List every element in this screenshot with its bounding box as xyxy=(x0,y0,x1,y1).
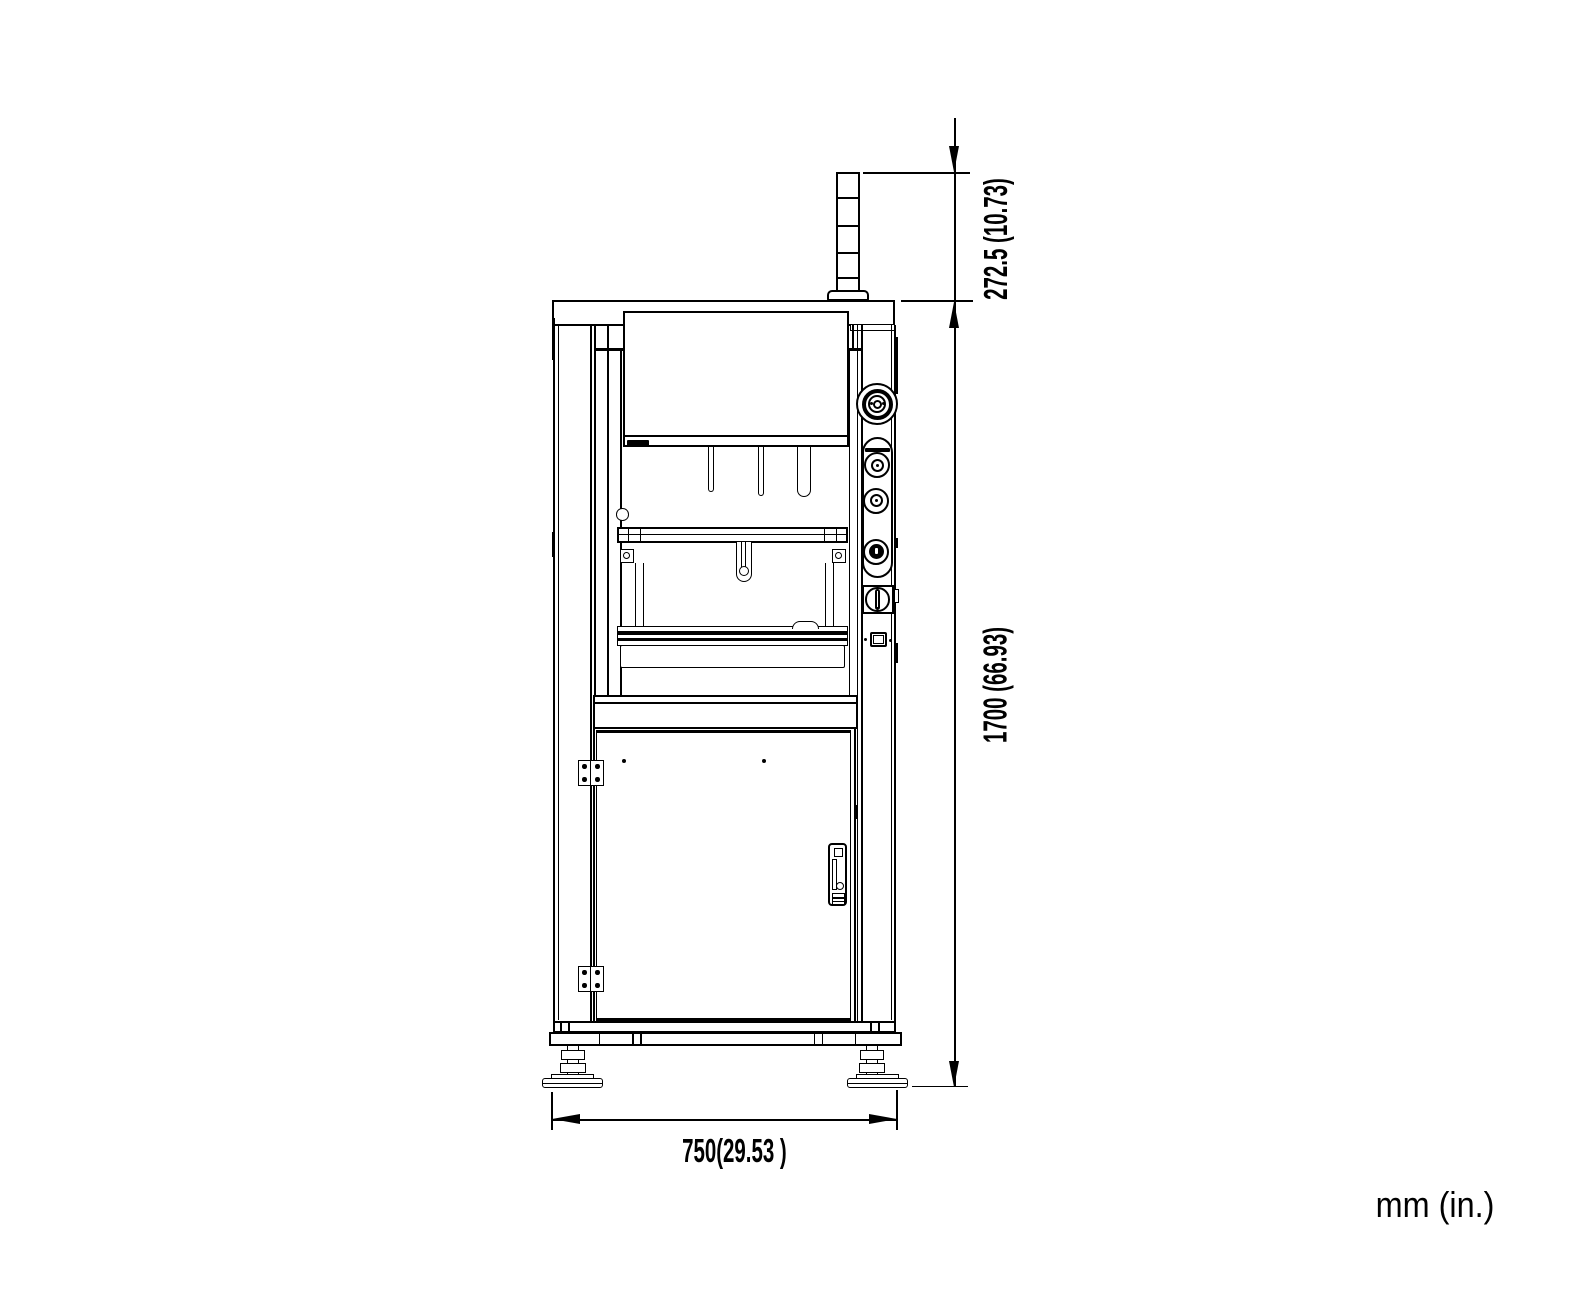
tower-segment-line xyxy=(838,225,858,227)
door-gap-line-right xyxy=(857,728,858,1021)
handle-lock xyxy=(836,882,845,891)
base-channel-tick xyxy=(822,1034,824,1044)
service-connector-inner xyxy=(873,635,884,645)
door-frame-right xyxy=(854,728,856,1021)
guide-post-right xyxy=(825,563,834,629)
estop-dot xyxy=(882,402,885,405)
frame-left-inner-line xyxy=(594,325,597,695)
tower-height-value: 272.5 (10.73) xyxy=(977,178,1015,300)
guide-cap-right xyxy=(832,549,846,563)
latch-stripe xyxy=(833,901,844,903)
tower-segment-line xyxy=(838,252,858,254)
side-mount-tab xyxy=(894,643,898,663)
connector-dot xyxy=(889,639,892,642)
guide-cap-bolt xyxy=(623,552,630,559)
tool-pin xyxy=(708,447,714,492)
tool-pin xyxy=(758,447,764,496)
frame-right-shelf-line xyxy=(849,348,861,351)
hinge-bolt xyxy=(595,764,600,769)
tool-pin-wide xyxy=(797,447,811,497)
latch-stripe xyxy=(833,897,844,899)
hinge-pin xyxy=(590,761,592,786)
foot-pad-line xyxy=(543,1083,602,1085)
frame-right-outer-edge xyxy=(894,325,896,1021)
base-channel xyxy=(549,1032,902,1046)
head-guard-panel xyxy=(623,311,849,447)
signal-tower xyxy=(836,172,860,293)
platen-tick xyxy=(640,529,642,541)
machine-width-value: 750(29.53 ) xyxy=(682,1132,787,1170)
dim-arrow-right xyxy=(869,1114,897,1124)
control-column-inner-edge xyxy=(861,325,863,1021)
frame-left-inner-line xyxy=(590,325,592,1021)
base-channel-tick xyxy=(814,1034,816,1044)
dim-arrow-down xyxy=(949,146,959,172)
frame-left-edge-line xyxy=(558,325,559,1020)
side-mount-tab xyxy=(894,538,898,549)
machine-height-value: 1700 (66.93) xyxy=(977,627,1015,743)
base-rail-tick xyxy=(568,1023,570,1031)
foot-nut-right xyxy=(860,1050,884,1060)
frame-left-outer-edge xyxy=(553,325,555,1021)
switch-side-tab xyxy=(894,589,899,603)
foot-pad-line xyxy=(848,1083,907,1085)
frame-right-inner-line xyxy=(852,325,854,350)
door-screw-dot xyxy=(622,759,626,763)
door-hinge-bottom xyxy=(578,966,604,993)
upper-platen xyxy=(617,527,848,543)
mid-rail-inner-line xyxy=(595,702,856,704)
control-button-1-dot xyxy=(876,464,879,467)
extension-line-width-right xyxy=(896,1090,898,1130)
foot-nut-left xyxy=(561,1050,585,1060)
foot-pad-right xyxy=(847,1078,908,1089)
door-screw-dot xyxy=(762,759,766,763)
hinge-bolt xyxy=(595,777,600,782)
base-rail-tick xyxy=(560,1023,562,1031)
base-rail xyxy=(553,1021,896,1033)
frame-left-inner-line xyxy=(607,325,609,695)
platen-tick xyxy=(836,529,838,541)
dim-arrow-up xyxy=(949,302,959,328)
guide-post-left xyxy=(635,563,644,629)
base-channel-tick xyxy=(632,1034,634,1044)
hinge-bolt xyxy=(595,970,600,975)
base-rail-tick xyxy=(878,1023,880,1031)
connector-dot xyxy=(864,638,867,641)
main-switch-handle-slot xyxy=(877,591,879,607)
base-channel-tick xyxy=(855,1034,857,1044)
center-tool-slot xyxy=(741,542,746,569)
machine-front-elevation-drawing: 272.5 (10.73) 1700 (66.93) 750(29.53 ) m… xyxy=(0,0,1576,1300)
door-handle xyxy=(828,843,848,907)
unit-note-text: mm (in.) xyxy=(1376,1184,1495,1226)
hinge-bolt xyxy=(582,764,587,769)
tower-segment-line xyxy=(838,277,858,279)
estop-dot xyxy=(870,402,873,405)
handle-top-plate xyxy=(834,848,844,857)
side-mount-tab xyxy=(552,532,555,557)
mid-frame-rail xyxy=(593,695,858,729)
hinge-bolt xyxy=(595,983,600,988)
hinge-bolt xyxy=(582,970,587,975)
estop-button-hub xyxy=(873,400,882,409)
machine-model-label xyxy=(627,440,649,446)
key-switch-slot xyxy=(875,548,878,554)
door-hinge-top xyxy=(578,760,604,787)
head-panel-bottom-strip-line xyxy=(625,435,847,437)
foot-pad-left xyxy=(542,1078,603,1089)
platen-inner-line xyxy=(619,534,846,536)
platen-tick xyxy=(824,529,826,541)
frame-left-shelf-line xyxy=(594,348,624,351)
dim-arrow-left xyxy=(552,1114,580,1124)
base-channel-tick xyxy=(599,1034,601,1044)
horizontal-dimension-line xyxy=(552,1119,898,1121)
table-tray xyxy=(620,645,845,668)
center-tool-bolt xyxy=(739,566,749,576)
platen-tick xyxy=(628,529,630,541)
extension-line-machine-top xyxy=(901,300,973,302)
handle-latch-block xyxy=(832,893,845,905)
frame-right-edge-line xyxy=(891,325,892,1020)
side-mount-tab xyxy=(894,337,898,394)
extension-line-machine-bottom xyxy=(912,1086,968,1088)
guide-cap-bolt xyxy=(835,552,842,559)
foot-nut-left xyxy=(560,1063,586,1074)
hinge-bolt xyxy=(582,777,587,782)
control-button-2-dot xyxy=(875,499,878,502)
table-handle-bump xyxy=(792,621,819,629)
extension-line-width-left xyxy=(551,1092,553,1130)
hinge-pin xyxy=(590,967,592,992)
tower-segment-line xyxy=(838,197,858,199)
base-channel-tick xyxy=(640,1034,642,1044)
guide-cap-left xyxy=(620,549,634,563)
vertical-dimension-line xyxy=(954,118,956,1087)
base-rail-tick xyxy=(870,1023,872,1031)
side-mount-tab xyxy=(552,318,555,360)
frame-hole xyxy=(616,508,629,521)
frame-right-inner-line xyxy=(857,325,859,695)
hinge-bolt xyxy=(582,983,587,988)
cabinet-door xyxy=(596,730,851,1021)
extension-line-tower-top xyxy=(863,172,970,174)
dim-arrow-down xyxy=(949,1061,959,1087)
latch-keeper xyxy=(855,805,858,819)
foot-nut-right xyxy=(859,1063,885,1074)
